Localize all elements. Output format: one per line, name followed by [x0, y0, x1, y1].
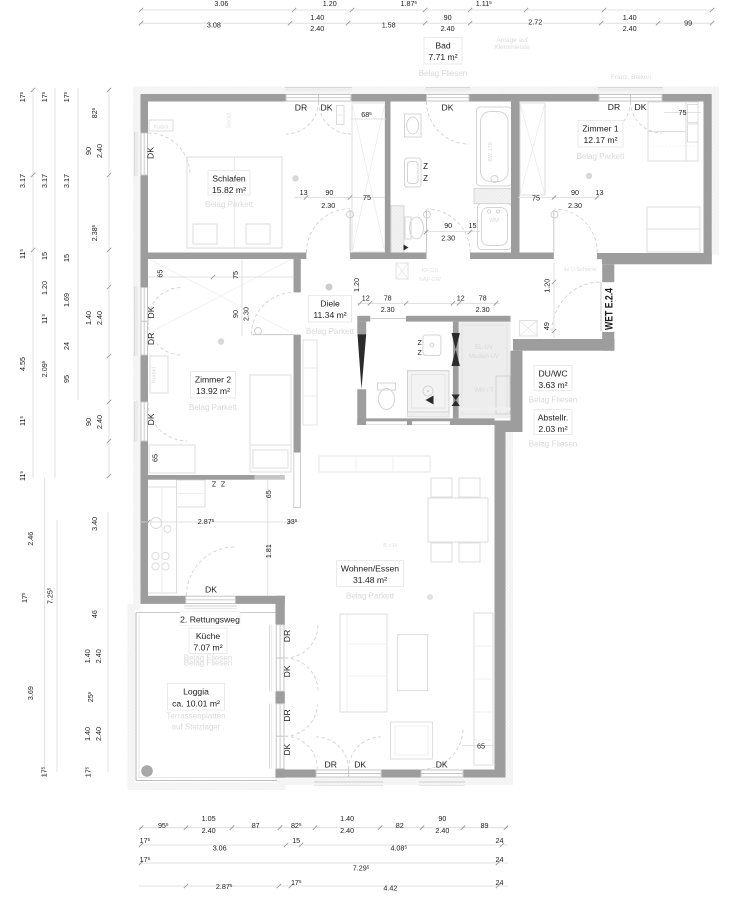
svg-text:Belag Fliesen: Belag Fliesen [529, 440, 577, 449]
svg-text:2.40: 2.40 [435, 826, 449, 835]
svg-text:13: 13 [596, 188, 604, 197]
svg-text:Schlafen: Schlafen [212, 174, 246, 184]
svg-text:DK: DK [146, 147, 156, 159]
svg-text:2.40: 2.40 [310, 24, 324, 33]
svg-text:Z: Z [423, 162, 428, 171]
svg-text:Zimmer 2: Zimmer 2 [195, 375, 232, 385]
svg-text:KAF GW: KAF GW [419, 277, 442, 283]
svg-text:78: 78 [384, 294, 392, 303]
svg-text:75: 75 [363, 193, 371, 202]
svg-text:95: 95 [62, 375, 71, 383]
svg-text:KF GS: KF GS [422, 268, 439, 274]
svg-text:65: 65 [156, 270, 165, 278]
svg-text:24: 24 [62, 342, 71, 350]
svg-text:46: 46 [90, 610, 99, 618]
svg-text:1.40: 1.40 [340, 814, 354, 823]
svg-text:DK: DK [442, 103, 454, 113]
svg-text:65: 65 [477, 742, 485, 751]
svg-text:99: 99 [684, 19, 692, 28]
svg-text:WM / T: WM / T [474, 388, 494, 394]
svg-text:90: 90 [325, 188, 333, 197]
svg-text:3.17: 3.17 [62, 174, 71, 188]
svg-text:3.69: 3.69 [26, 686, 35, 700]
svg-text:7.07 m²: 7.07 m² [193, 643, 222, 653]
svg-text:49: 49 [542, 322, 551, 330]
svg-text:Abstellr.: Abstellr. [538, 413, 569, 423]
svg-text:Franz. Balkon: Franz. Balkon [611, 74, 651, 81]
svg-text:2.40: 2.40 [95, 311, 104, 325]
svg-text:75: 75 [532, 194, 540, 203]
svg-text:1.40: 1.40 [623, 13, 637, 22]
svg-text:2.30: 2.30 [568, 201, 582, 210]
svg-text:87: 87 [252, 821, 260, 830]
svg-text:1.40: 1.40 [83, 649, 92, 663]
svg-text:12: 12 [457, 294, 465, 303]
svg-text:2.72: 2.72 [528, 17, 542, 26]
svg-text:DR: DR [295, 103, 307, 113]
svg-text:DR: DR [146, 333, 156, 345]
svg-text:auf Stelzlager: auf Stelzlager [172, 723, 221, 732]
svg-text:1.20: 1.20 [543, 279, 552, 293]
svg-text:Belag Parkett: Belag Parkett [306, 327, 355, 336]
svg-text:Z: Z [418, 350, 423, 357]
svg-text:DR: DR [282, 709, 292, 721]
svg-text:Loggia: Loggia [183, 687, 209, 697]
svg-text:2.30: 2.30 [381, 305, 395, 314]
svg-text:15.82 m²: 15.82 m² [212, 185, 246, 195]
svg-text:15: 15 [40, 252, 49, 260]
svg-text:Z: Z [220, 480, 225, 487]
svg-text:90: 90 [438, 814, 446, 823]
svg-text:2.40: 2.40 [95, 144, 104, 158]
svg-text:3.63 m²: 3.63 m² [538, 380, 567, 390]
svg-text:15: 15 [292, 836, 300, 845]
svg-text:Bad: Bad [435, 41, 451, 51]
svg-text:2.40: 2.40 [441, 24, 455, 33]
svg-text:2.40: 2.40 [340, 826, 354, 835]
svg-text:90: 90 [84, 418, 93, 426]
svg-text:DK: DK [282, 743, 292, 755]
svg-text:DU/WC: DU/WC [538, 369, 567, 379]
svg-text:2.46: 2.46 [26, 532, 35, 546]
svg-text:13: 13 [300, 188, 308, 197]
svg-text:Belag Fliesen: Belag Fliesen [529, 396, 577, 405]
svg-text:Küche: Küche [196, 631, 221, 641]
svg-text:WET E.2.4: WET E.2.4 [603, 287, 615, 330]
svg-text:65: 65 [264, 490, 273, 498]
svg-text:Wohnen/Essen: Wohnen/Essen [341, 564, 399, 574]
svg-text:Belag Fliesen: Belag Fliesen [419, 69, 467, 78]
svg-text:24: 24 [496, 878, 504, 887]
svg-text:1.20: 1.20 [40, 281, 49, 295]
svg-text:1.58: 1.58 [382, 21, 396, 30]
svg-text:90: 90 [444, 13, 452, 22]
svg-text:1.05: 1.05 [202, 814, 216, 823]
svg-text:13.92 m²: 13.92 m² [196, 386, 230, 396]
svg-text:1.40: 1.40 [83, 727, 92, 741]
svg-text:11.34 m²: 11.34 m² [313, 310, 346, 320]
svg-text:24: 24 [496, 836, 504, 845]
svg-text:1.81: 1.81 [264, 544, 273, 558]
svg-text:Belag Parkett: Belag Parkett [205, 200, 254, 209]
svg-text:1.40: 1.40 [310, 13, 324, 22]
svg-text:15: 15 [469, 221, 477, 230]
svg-text:Terrassenplatten: Terrassenplatten [166, 712, 225, 721]
svg-text:90: 90 [231, 310, 240, 318]
svg-text:2.30: 2.30 [476, 305, 490, 314]
svg-text:Z: Z [418, 340, 423, 347]
svg-text:BW 170: BW 170 [488, 142, 494, 162]
svg-text:B x H: B x H [383, 543, 396, 549]
svg-text:EL-UV: EL-UV [475, 345, 493, 351]
svg-text:12: 12 [362, 294, 370, 303]
svg-text:3.17: 3.17 [40, 174, 49, 188]
svg-text:24: 24 [496, 855, 504, 864]
svg-text:1.20: 1.20 [323, 0, 337, 8]
svg-text:1.20: 1.20 [352, 278, 361, 292]
svg-text:Z: Z [423, 174, 428, 183]
svg-text:1.40: 1.40 [84, 311, 93, 325]
svg-text:DK: DK [205, 585, 217, 595]
svg-text:DK: DK [282, 665, 292, 677]
svg-text:DR: DR [324, 760, 336, 770]
svg-text:DR: DR [282, 630, 292, 642]
svg-text:75: 75 [679, 108, 687, 117]
svg-text:90: 90 [84, 147, 93, 155]
svg-text:2.40: 2.40 [623, 24, 637, 33]
svg-text:2.40: 2.40 [95, 415, 104, 429]
svg-text:2.30: 2.30 [242, 307, 251, 321]
svg-text:3.17: 3.17 [18, 174, 27, 188]
svg-text:2.40: 2.40 [202, 826, 216, 835]
svg-text:Diele: Diele [320, 299, 340, 309]
svg-text:Kurbel: Kurbel [152, 367, 158, 383]
svg-text:2.30: 2.30 [321, 201, 335, 210]
svg-text:Belag Parkett: Belag Parkett [346, 592, 395, 601]
svg-text:3.08: 3.08 [207, 21, 221, 30]
svg-text:7.71 m²: 7.71 m² [428, 52, 457, 62]
svg-text:89: 89 [481, 821, 489, 830]
svg-text:DK: DK [146, 306, 156, 318]
svg-text:Steckd.: Steckd. [227, 112, 233, 129]
svg-text:82: 82 [396, 821, 404, 830]
svg-text:Z: Z [211, 480, 216, 487]
svg-text:15: 15 [62, 254, 71, 262]
svg-text:Belag Fliesen: Belag Fliesen [184, 654, 232, 663]
svg-text:31.48 m²: 31.48 m² [353, 575, 387, 585]
svg-text:3.06: 3.06 [214, 0, 228, 8]
svg-text:DK: DK [321, 103, 333, 113]
svg-text:2. Rettungsweg: 2. Rettungsweg [180, 614, 240, 624]
svg-text:Klemmleiste: Klemmleiste [494, 44, 530, 51]
svg-text:DK: DK [635, 102, 647, 112]
svg-text:65: 65 [151, 454, 160, 462]
svg-text:4.55: 4.55 [18, 357, 27, 371]
svg-text:3.40: 3.40 [90, 517, 99, 531]
svg-text:4.42: 4.42 [383, 884, 397, 893]
svg-text:2.40: 2.40 [94, 727, 103, 741]
svg-text:DK: DK [354, 760, 366, 770]
svg-text:4x U-Schiene: 4x U-Schiene [563, 267, 596, 273]
svg-text:1.69: 1.69 [62, 293, 71, 307]
svg-text:WM: WM [489, 218, 499, 224]
svg-text:DK: DK [146, 413, 156, 425]
svg-text:90: 90 [444, 221, 452, 230]
svg-text:2.03 m²: 2.03 m² [538, 424, 567, 434]
svg-text:90: 90 [571, 188, 579, 197]
svg-text:2.40: 2.40 [94, 649, 103, 663]
svg-text:Belag Parkett: Belag Parkett [189, 403, 238, 412]
svg-text:3.06: 3.06 [213, 844, 227, 853]
svg-text:12.17 m²: 12.17 m² [584, 135, 618, 145]
svg-text:DR: DR [608, 102, 620, 112]
svg-text:78: 78 [479, 294, 487, 303]
svg-text:Anlage auf: Anlage auf [496, 37, 527, 44]
svg-text:Belag Parkett: Belag Parkett [576, 152, 625, 161]
svg-text:Kurbel: Kurbel [154, 125, 168, 131]
svg-text:2.30: 2.30 [441, 234, 455, 243]
svg-text:75: 75 [231, 271, 240, 279]
svg-text:ca. 10.01 m²: ca. 10.01 m² [172, 698, 220, 708]
svg-text:Zimmer 1: Zimmer 1 [582, 124, 619, 134]
svg-text:DK: DK [436, 760, 448, 770]
svg-text:Medien-UV: Medien-UV [469, 354, 499, 360]
